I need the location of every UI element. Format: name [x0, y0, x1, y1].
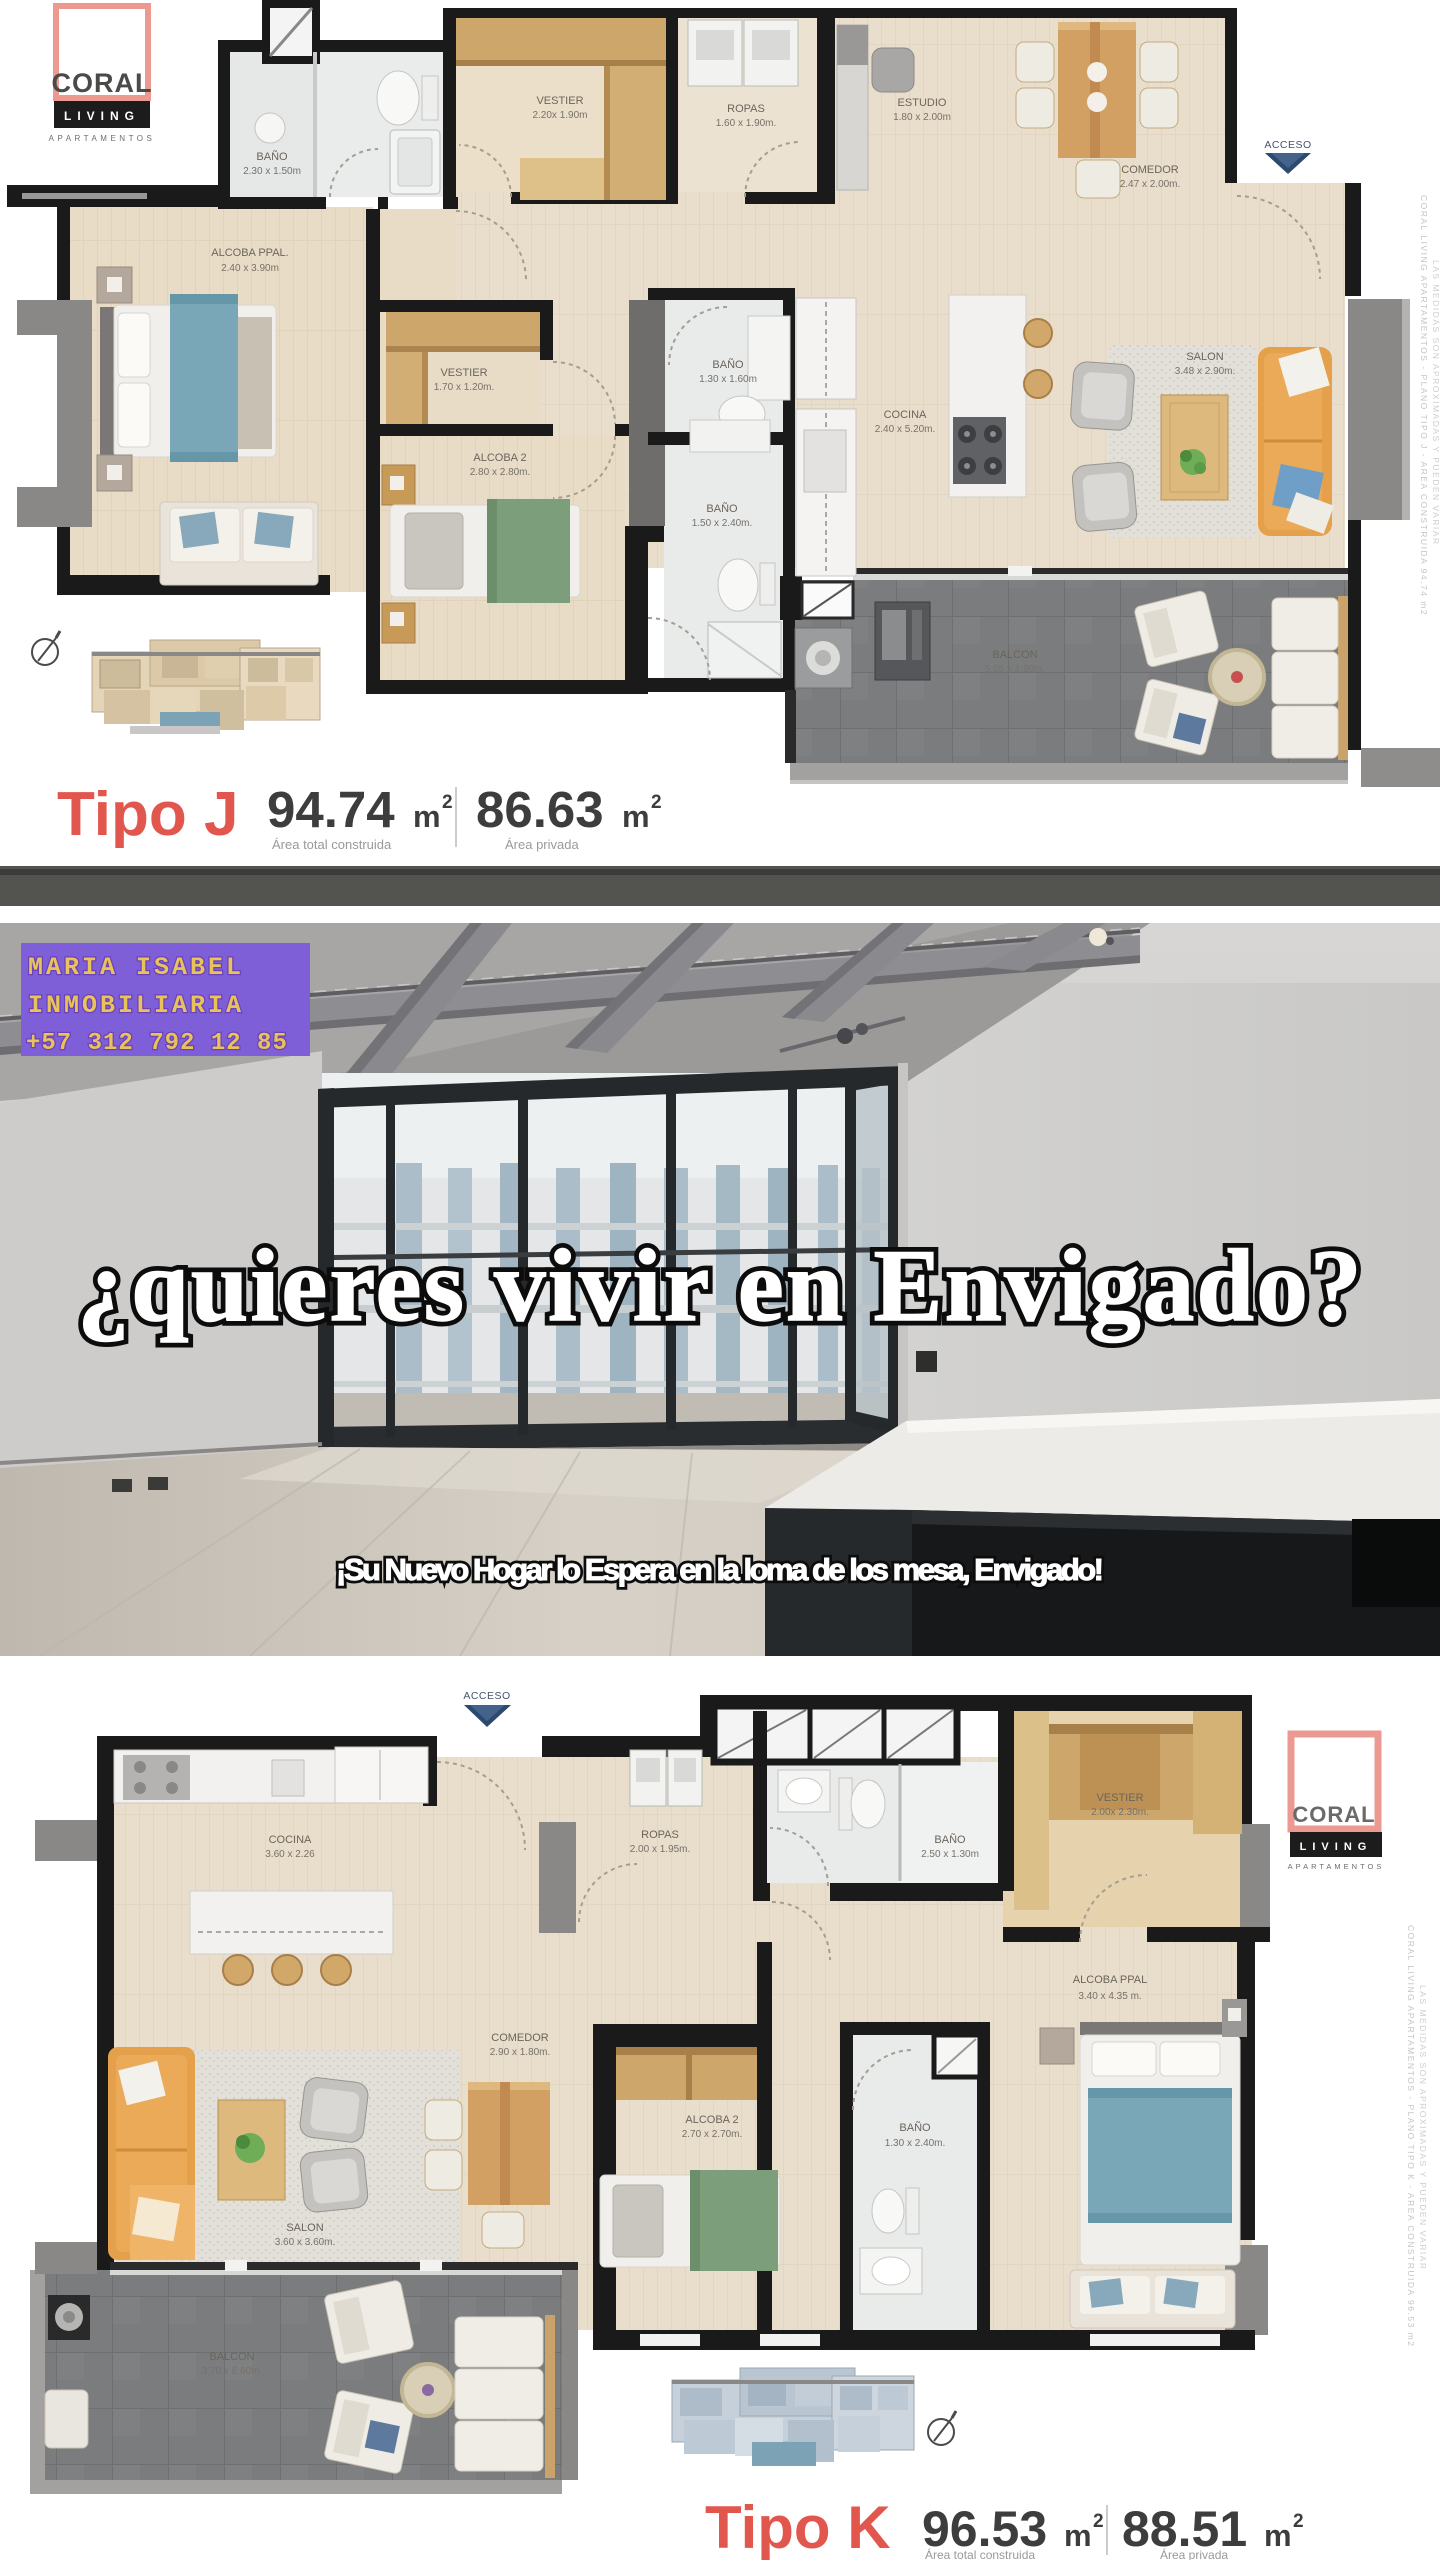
svg-text:5.05 x 1.90m.: 5.05 x 1.90m. — [985, 664, 1046, 675]
svg-text:CORAL LIVING APARTAMENTOS - PL: CORAL LIVING APARTAMENTOS - PLANO TIPO J… — [1419, 195, 1429, 616]
svg-text:m: m — [1064, 2518, 1092, 2553]
svg-text:m: m — [622, 799, 650, 834]
svg-text:COCINA: COCINA — [884, 409, 927, 421]
svg-text:2: 2 — [651, 792, 662, 813]
svg-text:2.50 x 1.30m: 2.50 x 1.30m — [921, 1849, 979, 1860]
svg-text:LIVING: LIVING — [64, 109, 140, 123]
svg-text:CORAL: CORAL — [52, 68, 153, 98]
svg-text:2.20x 1.90m: 2.20x 1.90m — [532, 110, 587, 121]
svg-text:3.60 x 2.26: 3.60 x 2.26 — [265, 1849, 315, 1860]
svg-text:APARTAMENTOS: APARTAMENTOS — [49, 134, 156, 143]
svg-text:SALON: SALON — [1186, 351, 1223, 363]
svg-text:2.47 x 2.00m.: 2.47 x 2.00m. — [1120, 179, 1181, 190]
svg-text:2.70 x 2.70m.: 2.70 x 2.70m. — [682, 2129, 743, 2140]
svg-text:VESTIER: VESTIER — [1096, 1792, 1143, 1804]
svg-text:94.74: 94.74 — [267, 781, 395, 838]
svg-text:1.50 x 2.40m.: 1.50 x 2.40m. — [692, 518, 753, 529]
svg-text:2: 2 — [442, 792, 453, 813]
svg-text:LIVING: LIVING — [1300, 1841, 1373, 1853]
svg-text:ESTUDIO: ESTUDIO — [898, 97, 947, 109]
svg-text:2.90 x 1.80m.: 2.90 x 1.80m. — [490, 2047, 551, 2058]
svg-text:1.30 x 1.60m: 1.30 x 1.60m — [699, 374, 757, 385]
svg-text:3.40 x 4.35 m.: 3.40 x 4.35 m. — [1078, 1991, 1141, 2002]
svg-text:BALCON: BALCON — [992, 649, 1037, 661]
svg-text:1.80 x 2.00m: 1.80 x 2.00m — [893, 112, 951, 123]
svg-text:ALCOBA PPAL.: ALCOBA PPAL. — [211, 247, 288, 259]
svg-text:ROPAS: ROPAS — [641, 1829, 679, 1841]
svg-text:BAÑO: BAÑO — [256, 150, 288, 163]
svg-text:COMEDOR: COMEDOR — [1121, 164, 1179, 176]
svg-text:ACCESO: ACCESO — [463, 1690, 510, 1702]
svg-text:¿quieres vivir en Envigado?: ¿quieres vivir en Envigado? — [78, 1229, 1363, 1343]
svg-text:2: 2 — [1093, 2511, 1104, 2532]
svg-text:Tipo J: Tipo J — [57, 780, 238, 849]
svg-text:86.63: 86.63 — [476, 781, 604, 838]
svg-text:2.30 x 1.50m: 2.30 x 1.50m — [243, 166, 301, 177]
svg-text:CORAL: CORAL — [1292, 1802, 1375, 1827]
svg-text:2.00 x 1.95m.: 2.00 x 1.95m. — [630, 1844, 691, 1855]
svg-text:LAS MEDIDAS SON APROXIMADAS Y: LAS MEDIDAS SON APROXIMADAS Y PUEDEN VAR… — [1431, 260, 1440, 546]
svg-text:Área total construida: Área total construida — [925, 2547, 1035, 2560]
svg-text:ALCOBA 2: ALCOBA 2 — [685, 2114, 738, 2126]
svg-text:2.80 x 2.80m.: 2.80 x 2.80m. — [470, 467, 531, 478]
svg-text:ALCOBA PPAL: ALCOBA PPAL — [1073, 1974, 1147, 1986]
svg-text:BAÑO: BAÑO — [712, 358, 744, 371]
svg-text:CORAL LIVING APARTAMENTOS - PL: CORAL LIVING APARTAMENTOS - PLANO TIPO K… — [1406, 1925, 1416, 2348]
svg-text:2: 2 — [1293, 2511, 1304, 2532]
svg-text:1.60 x 1.90m.: 1.60 x 1.90m. — [716, 118, 777, 129]
svg-text:¡Su Nuevo Hogar lo Espera en l: ¡Su Nuevo Hogar lo Espera en la loma de … — [336, 1552, 1104, 1587]
svg-text:3.70 x 6.60m.: 3.70 x 6.60m. — [202, 2366, 263, 2377]
svg-text:BAÑO: BAÑO — [706, 502, 738, 515]
svg-text:SALON: SALON — [286, 2222, 323, 2234]
svg-text:1.30 x 2.40m.: 1.30 x 2.40m. — [885, 2138, 946, 2149]
svg-text:ROPAS: ROPAS — [727, 103, 765, 115]
svg-text:m: m — [413, 799, 441, 834]
svg-text:MARIA ISABEL: MARIA ISABEL — [28, 953, 244, 982]
svg-text:LAS MEDIDAS SON APROXIMADAS Y: LAS MEDIDAS SON APROXIMADAS Y PUEDEN VAR… — [1418, 1985, 1428, 2271]
svg-text:BAÑO: BAÑO — [899, 2121, 931, 2134]
svg-text:Tipo K: Tipo K — [705, 2494, 891, 2560]
svg-text:VESTIER: VESTIER — [536, 95, 583, 107]
svg-text:2.40 x 5.20m.: 2.40 x 5.20m. — [875, 424, 936, 435]
svg-text:APARTAMENTOS: APARTAMENTOS — [1288, 1862, 1385, 1871]
svg-text:COCINA: COCINA — [269, 1834, 312, 1846]
svg-text:Área privada: Área privada — [505, 837, 579, 852]
svg-text:BALCON: BALCON — [209, 2351, 254, 2363]
svg-text:m: m — [1264, 2518, 1292, 2553]
svg-text:COMEDOR: COMEDOR — [491, 2032, 549, 2044]
svg-text:3.60 x 3.60m.: 3.60 x 3.60m. — [275, 2237, 336, 2248]
svg-text:BAÑO: BAÑO — [934, 1833, 966, 1846]
svg-text:2.00x 2.30m.: 2.00x 2.30m. — [1091, 1807, 1149, 1818]
svg-text:+57 312 792 12 85: +57 312 792 12 85 — [26, 1030, 288, 1056]
svg-text:INMOBILIARIA: INMOBILIARIA — [28, 991, 244, 1020]
svg-text:Área privada: Área privada — [1160, 2547, 1228, 2560]
svg-text:1.70 x 1.20m.: 1.70 x 1.20m. — [434, 382, 495, 393]
svg-text:3.48 x 2.90m.: 3.48 x 2.90m. — [1175, 366, 1236, 377]
svg-text:ALCOBA 2: ALCOBA 2 — [473, 452, 526, 464]
svg-text:VESTIER: VESTIER — [440, 367, 487, 379]
svg-text:Área total construida: Área total construida — [272, 837, 392, 852]
svg-text:ACCESO: ACCESO — [1264, 139, 1311, 151]
svg-text:2.40 x 3.90m: 2.40 x 3.90m — [221, 263, 279, 274]
